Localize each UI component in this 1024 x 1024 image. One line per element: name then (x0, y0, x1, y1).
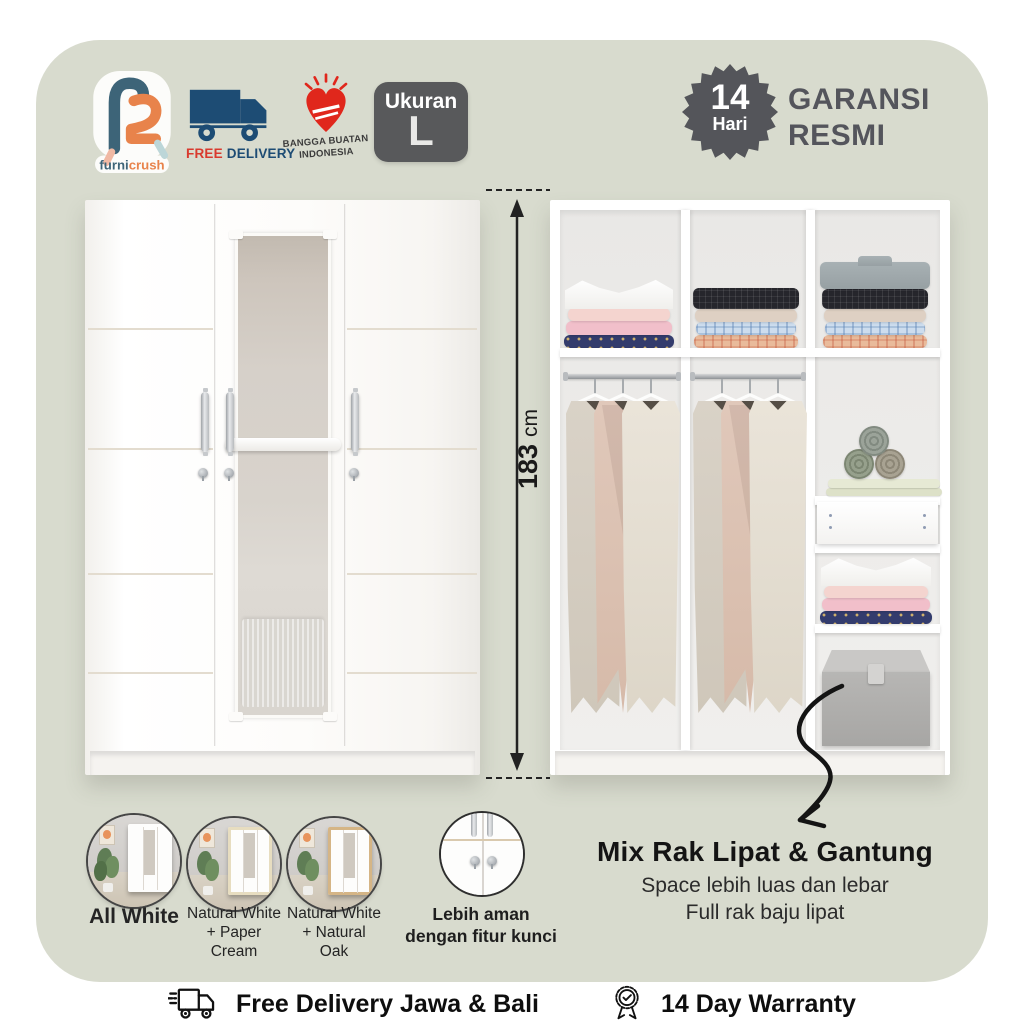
hanging-garment (622, 379, 680, 731)
door-lock-left (198, 468, 208, 478)
wall-art (100, 826, 114, 843)
wardrobe-plinth (555, 751, 945, 775)
side-shelf (815, 624, 940, 633)
vertical-divider (681, 210, 690, 750)
warranty-seal: 14 Hari (682, 64, 778, 160)
footer-warranty-medal-icon (607, 984, 647, 1024)
mini-wardrobe (128, 824, 172, 892)
lock-feature-label: Lebih amandengan fitur kunci (400, 903, 562, 947)
lock-icon (487, 856, 497, 866)
door-seam (347, 448, 477, 450)
top-shelf (560, 348, 940, 357)
bangga-buatan-indonesia-badge: BANGGA BUATAN INDONESIA (278, 72, 374, 172)
seal-unit: Hari (682, 115, 778, 133)
door-lock-middle (224, 468, 234, 478)
height-dimension-label: 183cm (513, 379, 547, 519)
size-badge: Ukuran L (374, 82, 468, 162)
door-seam (347, 573, 477, 575)
door-lock-right (349, 468, 359, 478)
interior-drawer (817, 502, 938, 544)
logo-word-furni: furni (99, 158, 128, 173)
mini-wardrobe (228, 827, 272, 895)
door-seam (347, 328, 477, 330)
footer-truck-icon (168, 985, 222, 1023)
size-value: L (374, 110, 468, 152)
door-handle-left (201, 392, 209, 452)
mirror-clip (229, 230, 243, 239)
door-seam (88, 328, 213, 330)
door-handle-middle (226, 392, 234, 452)
height-value: 183 (513, 444, 543, 489)
lock-icon (470, 856, 480, 866)
hanging-garment (749, 379, 807, 731)
door-seam (88, 573, 213, 575)
wardrobe-open-photo (550, 200, 950, 775)
seal-number: 14 (682, 81, 778, 115)
free-delivery-label: FREE DELIVERY (186, 146, 274, 161)
bangga-label: BANGGA BUATAN INDONESIA (277, 133, 374, 164)
shirt-collar (858, 256, 892, 266)
callout-title: Mix Rak Lipat & Gantung (575, 836, 955, 868)
product-banner: furnicrush FREE DELIVERY BANGGA BUATAN I… (0, 0, 1024, 1024)
seal-text: 14 Hari (682, 64, 778, 160)
delivery-truck-icon (188, 84, 272, 146)
callout-line2: Full rak baju lipat (575, 901, 955, 925)
callout-line1: Space lebih luas dan lebar (575, 874, 955, 898)
door-seam (88, 672, 213, 674)
mirror-door-mirror (235, 233, 331, 718)
variant-label-natural-oak: Natural White+ NaturalOak (272, 904, 396, 961)
furnicrush-logo: furnicrush (88, 68, 176, 176)
wardrobe-plinth (90, 751, 475, 775)
vertical-divider (806, 210, 815, 750)
side-shelf (815, 544, 940, 553)
mirror-reflection-rug (242, 619, 324, 707)
plant (94, 848, 122, 892)
door-gap (344, 204, 346, 746)
mirror-clip (323, 712, 337, 721)
variant-thumb-natural-oak (288, 818, 380, 910)
mirror-clip (229, 712, 243, 721)
mirror-crossbar (225, 438, 341, 451)
height-unit: cm (519, 409, 542, 437)
door-seam (88, 448, 213, 450)
heart-campaign-icon (291, 72, 361, 136)
door-handle-right (351, 392, 359, 452)
door-gap (214, 204, 216, 746)
mini-wardrobe (328, 827, 372, 895)
lock-feature-thumb (441, 813, 523, 895)
variant-thumb-paper-cream (188, 818, 280, 910)
free-delivery-badge: FREE DELIVERY (186, 84, 274, 174)
guarantee-title: GARANSI RESMI (788, 82, 930, 154)
wardrobe-closed-photo (85, 200, 480, 775)
door-seam (347, 672, 477, 674)
logo-word-crush: crush (129, 158, 165, 173)
footer-warranty-text: 14 Day Warranty (661, 990, 856, 1019)
furnicrush-logo-icon: furnicrush (88, 68, 176, 176)
svg-text:furnicrush: furnicrush (99, 158, 164, 173)
mirror-clip (323, 230, 337, 239)
footer-bar: Free Delivery Jawa & Bali 14 Day Warrant… (0, 984, 1024, 1024)
footer-delivery-text: Free Delivery Jawa & Bali (236, 990, 539, 1019)
variant-thumb-all-white (88, 815, 180, 907)
